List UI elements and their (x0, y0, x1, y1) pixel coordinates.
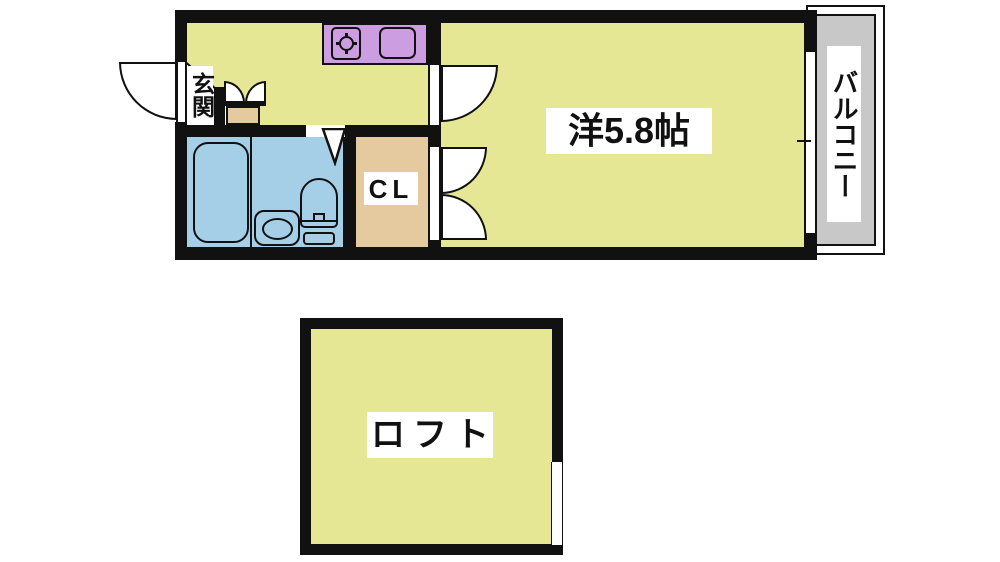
balcony-label: バルコニー (827, 46, 861, 222)
toilet-base-icon (303, 232, 335, 245)
wall-segment (804, 10, 817, 52)
bathtub-icon (193, 142, 249, 243)
washbasin-bowl-icon (262, 218, 293, 240)
shoe-cabinet (226, 106, 260, 125)
wall-segment (175, 122, 187, 260)
closet-door-jamb (428, 147, 441, 240)
entrance-label: 玄関 (189, 66, 213, 124)
wall-segment (428, 240, 441, 247)
toilet-lid-notch (313, 213, 325, 221)
stove-burner-icon (339, 36, 354, 51)
entrance-door-arc (119, 62, 177, 120)
entrance-door-jamb (176, 62, 187, 122)
kitchen-sink-icon (379, 27, 416, 59)
wall-segment (175, 247, 817, 260)
stove-burner-tick (336, 42, 340, 45)
kitchen-door-jamb (428, 65, 441, 125)
stove-burner-tick (345, 50, 348, 54)
stove-burner-tick (353, 42, 357, 45)
closet-label: CL (364, 172, 418, 205)
balcony-window-tick (797, 140, 811, 142)
wall-segment (428, 23, 441, 65)
wall-segment (175, 10, 187, 62)
wall-segment (804, 233, 817, 260)
wall-segment (428, 125, 441, 147)
wall-segment (175, 10, 817, 23)
wall-segment (187, 125, 306, 137)
balcony-window (804, 52, 817, 233)
main-room-label: 洋5.8帖 (546, 108, 712, 154)
stove-burner-tick (345, 33, 348, 37)
loft-opening (551, 462, 563, 545)
floorplan-canvas: 玄関 CL 洋5.8帖 バルコニー ロフト (0, 0, 1000, 562)
wall-segment (345, 125, 428, 137)
loft-label: ロフト (367, 412, 493, 458)
bathroom-door-marker (320, 128, 348, 166)
bathroom-divider-line (250, 137, 252, 247)
